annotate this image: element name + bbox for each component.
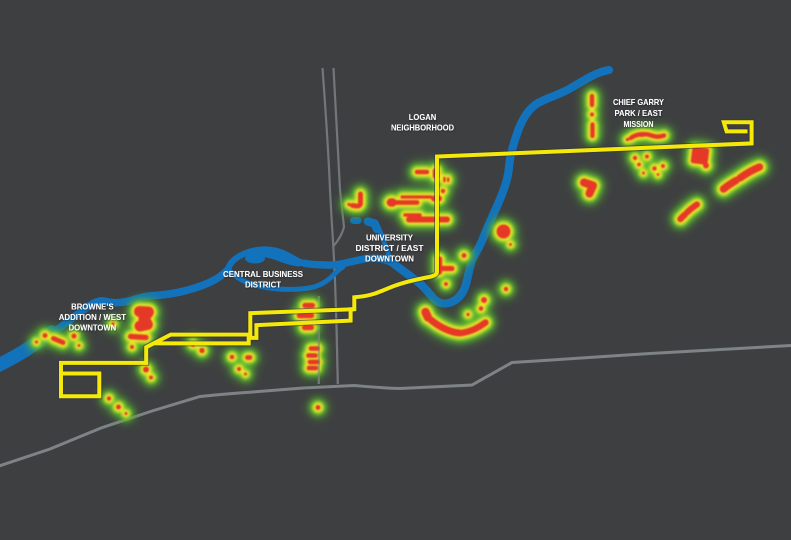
svg-text:CHIEF GARRY: CHIEF GARRY: [613, 97, 664, 107]
svg-text:DOWNTOWN: DOWNTOWN: [365, 254, 414, 264]
svg-text:MISSION: MISSION: [624, 119, 654, 129]
svg-text:ADDITION / WEST: ADDITION / WEST: [59, 312, 127, 322]
svg-text:CENTRAL BUSINESS: CENTRAL BUSINESS: [223, 269, 303, 279]
svg-text:UNIVERSITY: UNIVERSITY: [366, 233, 413, 243]
svg-text:NEIGHBORHOOD: NEIGHBORHOOD: [391, 122, 454, 132]
svg-text:DOWNTOWN: DOWNTOWN: [69, 323, 117, 333]
svg-text:DISTRICT / EAST: DISTRICT / EAST: [356, 243, 425, 253]
svg-text:PARK / EAST: PARK / EAST: [615, 108, 664, 118]
svg-text:DISTRICT: DISTRICT: [245, 280, 282, 290]
svg-text:LOGAN: LOGAN: [409, 112, 437, 122]
svg-text:BROWNE’S: BROWNE’S: [71, 301, 114, 311]
